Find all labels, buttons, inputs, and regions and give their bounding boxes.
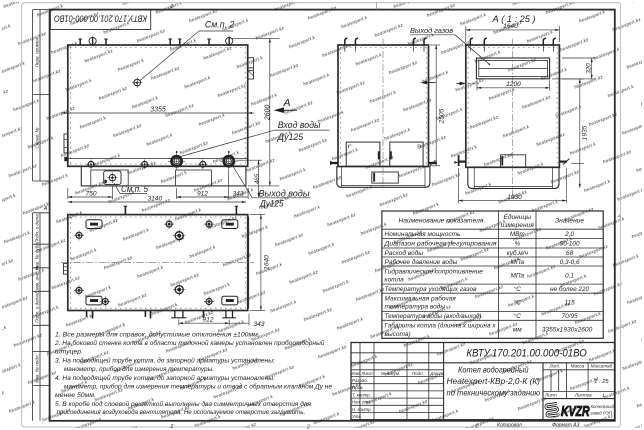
svg-text:Ду125: Ду125: [277, 132, 303, 142]
svg-text:1: 1: [476, 424, 479, 430]
svg-text:320: 320: [586, 63, 593, 74]
svg-text:не более 220: не более 220: [550, 285, 589, 293]
svg-text:2: 2: [170, 4, 174, 10]
svg-text:750: 750: [85, 190, 96, 197]
svg-text:Взам. инв. №: Взам. инв. №: [35, 265, 40, 293]
svg-text:Гидравлическое сопротивление: Гидравлическое сопротивление: [385, 268, 484, 276]
svg-text:°С: °С: [514, 299, 522, 307]
svg-text:3355х1930х2600: 3355х1930х2600: [542, 327, 593, 334]
svg-text:Разраб.: Разраб.: [352, 378, 368, 383]
svg-text:3140: 3140: [147, 195, 162, 202]
svg-text:Рабочее давление воды: Рабочее давление воды: [385, 258, 458, 266]
svg-text:2. На боковой стенке котла в о: 2. На боковой стенке котла в области топ…: [54, 339, 325, 347]
svg-text:115: 115: [565, 300, 576, 307]
svg-text:Лит.: Лит.: [548, 364, 560, 369]
svg-text:465: 465: [254, 173, 261, 184]
svg-text:Значение: Значение: [555, 218, 584, 225]
svg-text:Масштаб: Масштаб: [591, 364, 613, 369]
svg-text:Выход воды: Выход воды: [259, 188, 311, 198]
svg-text:Лист: Лист: [360, 371, 373, 376]
svg-text:Листов: Листов: [574, 393, 592, 398]
svg-text:Единицы: Единицы: [503, 213, 531, 221]
svg-text:1930: 1930: [507, 194, 522, 201]
svg-text:манометр, прибор для измерения: манометр, прибор для измерения температу…: [64, 383, 332, 391]
svg-text:4. На подводящей трубе котла,: 4. На подводящей трубе котла, до запорно…: [55, 374, 275, 382]
svg-text:Справ. №: Справ. №: [35, 128, 40, 149]
svg-text:котла: котла: [385, 277, 405, 284]
svg-text:Утв.: Утв.: [352, 414, 362, 419]
svg-text:присоединения воздуховода вент: присоединения воздуховода вентилятора. Н…: [57, 408, 306, 416]
svg-text:Т. контр.: Т. контр.: [352, 392, 371, 397]
svg-text:343: 343: [253, 321, 264, 328]
svg-text:Подп. и дата: Подп. и дата: [35, 214, 40, 243]
svg-text:менее 50мм.: менее 50мм.: [55, 392, 96, 399]
svg-text:1935: 1935: [581, 125, 588, 140]
svg-text:Номинальная мощность: Номинальная мощность: [385, 231, 462, 238]
svg-text:температура воды: температура воды: [385, 303, 446, 311]
svg-text:МПа: МПа: [511, 259, 525, 266]
svg-text:А: А: [283, 97, 291, 109]
svg-text:68: 68: [566, 250, 574, 257]
svg-text:343: 343: [232, 190, 243, 197]
svg-text:Наименование показателя: Наименование показателя: [398, 218, 483, 225]
svg-text:А: А: [43, 206, 48, 212]
svg-text:Котел водогрейный: Котел водогрейный: [458, 366, 529, 375]
svg-text:№ докум.: № докум.: [381, 371, 400, 376]
svg-text:1640: 1640: [264, 255, 271, 270]
svg-text:МВт: МВт: [510, 231, 526, 238]
svg-text:по техническому заданию: по техническому заданию: [447, 389, 541, 398]
svg-text:Инв. № подл.: Инв. № подл.: [35, 354, 40, 383]
svg-text:Нач. отд.: Нач. отд.: [352, 400, 372, 405]
svg-text:Пров.: Пров.: [352, 385, 364, 390]
svg-text:Подп.: Подп.: [412, 371, 424, 376]
svg-text:штуцер.: штуцер.: [55, 349, 83, 356]
svg-text:KVZR: KVZR: [561, 403, 590, 420]
svg-text:2: 2: [306, 425, 310, 430]
svg-text:Выход газов: Выход газов: [410, 26, 453, 35]
svg-text:Расход воды: Расход воды: [385, 249, 424, 257]
svg-text:завод РЭП: завод РЭП: [590, 410, 613, 415]
svg-text:1200: 1200: [506, 81, 521, 88]
svg-text:высота): высота): [385, 331, 411, 338]
svg-text:См.п. 2: См.п. 2: [205, 20, 235, 30]
svg-text:3. На подводящей трубе котла,: 3. На подводящей трубе котла, до запорно…: [55, 357, 275, 365]
svg-text:912: 912: [197, 190, 208, 197]
svg-text:МПа: МПа: [511, 273, 525, 280]
svg-text:КВТУ.170.201.00.000-01ВО: КВТУ.170.201.00.000-01ВО: [54, 13, 147, 24]
svg-text:1 : 25: 1 : 25: [594, 379, 609, 385]
svg-text:куб.м/ч: куб.м/ч: [507, 249, 529, 257]
svg-text:Ду125: Ду125: [259, 198, 284, 208]
svg-text:КВТУ.170.201.00.000-01ВО: КВТУ.170.201.00.000-01ВО: [466, 348, 587, 360]
svg-text:1: 1: [602, 393, 605, 398]
svg-text:0,1: 0,1: [565, 273, 574, 280]
svg-text:Изм: Изм: [351, 371, 359, 376]
svg-text:2600: 2600: [265, 105, 272, 122]
svg-text:Подп. и дата: Подп. и дата: [35, 293, 40, 322]
svg-text:Вход воды: Вход воды: [278, 120, 321, 130]
svg-text:измерения: измерения: [501, 222, 534, 229]
svg-text:5. В коробе под слоевой решетк: 5. В коробе под слоевой решеткой выполне…: [55, 400, 311, 408]
svg-text:50-100: 50-100: [560, 241, 580, 248]
svg-text:См.п. 5: См.п. 5: [121, 184, 149, 194]
svg-text:манометр, прибор для измерения: манометр, прибор для измерения температу…: [64, 365, 214, 373]
svg-text:3355: 3355: [150, 106, 166, 113]
svg-text:0,3-0,6: 0,3-0,6: [560, 259, 580, 266]
svg-text:Габариты котла (длинна х ширин: Габариты котла (длинна х ширина х: [385, 322, 497, 330]
svg-text:Копировал: Копировал: [497, 423, 522, 429]
svg-text:Масса: Масса: [571, 364, 585, 369]
svg-text:2: 2: [170, 424, 174, 430]
svg-text:%: %: [514, 241, 520, 248]
svg-text:70/95: 70/95: [562, 313, 578, 320]
svg-text:Температура воды (вход/выход): Температура воды (вход/выход): [385, 312, 482, 320]
svg-text:°С: °С: [514, 312, 522, 320]
svg-text:2505: 2505: [439, 108, 446, 124]
svg-text:912: 912: [202, 317, 213, 324]
svg-text:2,0: 2,0: [564, 231, 574, 238]
svg-text:А: А: [617, 214, 621, 219]
svg-text:Диапазон рабочего регулировани: Диапазон рабочего регулирования: [383, 240, 497, 248]
svg-text:мм: мм: [513, 327, 522, 334]
svg-text:Максимальная рабочая: Максимальная рабочая: [385, 295, 457, 303]
svg-text:1. Все размеры для справок, до: 1. Все размеры для справок, допустимые о…: [55, 331, 260, 339]
svg-text:Перв. примен.: Перв. примен.: [35, 37, 40, 68]
svg-text:°С: °С: [514, 285, 522, 293]
svg-text:Н. контр.: Н. контр.: [352, 407, 372, 412]
svg-text:Heatexpert-КВр-2,0-К (К): Heatexpert-КВр-2,0-К (К): [447, 377, 541, 386]
svg-text:Формат А3: Формат А3: [552, 423, 580, 429]
svg-text:Котельный: Котельный: [591, 404, 615, 409]
svg-text:Лист: Лист: [544, 393, 557, 398]
svg-text:1640: 1640: [503, 23, 518, 30]
svg-text:Дата: Дата: [429, 371, 442, 376]
svg-text:Температура уходящих газов: Температура уходящих газов: [385, 285, 478, 293]
